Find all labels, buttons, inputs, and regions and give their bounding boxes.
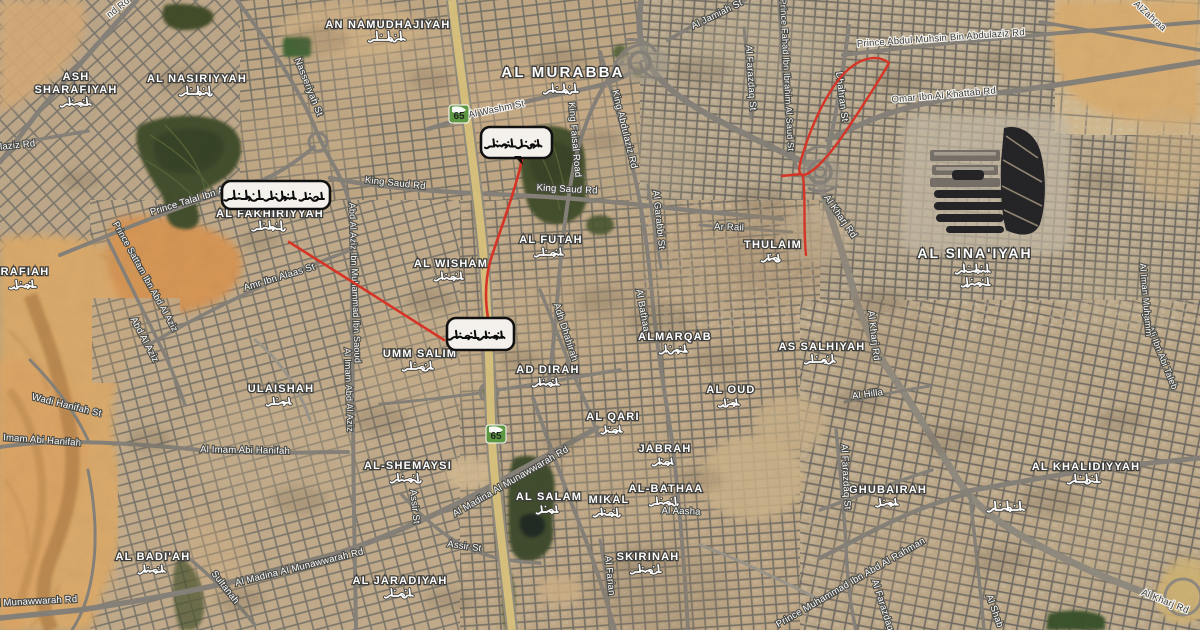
svg-text:AL OUD: AL OUD — [706, 384, 755, 396]
svg-text:AL-BATHAA: AL-BATHAA — [629, 483, 704, 495]
svg-text:JABRAH: JABRAH — [638, 443, 691, 455]
svg-text:AN NAMUDHAJIYAH: AN NAMUDHAJIYAH — [325, 19, 450, 31]
svg-text:GHUBAIRAH: GHUBAIRAH — [849, 484, 927, 496]
svg-text:ULAISHAH: ULAISHAH — [248, 383, 314, 395]
svg-text:AL BADI'AH: AL BADI'AH — [116, 551, 191, 563]
svg-text:AL-SHEMAYSI: AL-SHEMAYSI — [364, 460, 452, 472]
svg-text:Al Aasha: Al Aasha — [661, 505, 701, 517]
svg-text:THULAIM: THULAIM — [744, 239, 802, 251]
svg-text:AL SALAM: AL SALAM — [516, 491, 582, 503]
svg-text:SHARAFIYAH: SHARAFIYAH — [34, 84, 117, 96]
svg-text:AL NASIRIYYAH: AL NASIRIYYAH — [147, 73, 247, 85]
svg-text:AL SINA'IYAH: AL SINA'IYAH — [917, 245, 1032, 261]
svg-text:AL KHALIDIYYAH: AL KHALIDIYYAH — [1032, 461, 1140, 473]
svg-text:SKIRINAH: SKIRINAH — [617, 551, 680, 563]
svg-text:UMM SALIM: UMM SALIM — [383, 348, 457, 360]
svg-text:AL QARI: AL QARI — [586, 411, 639, 423]
svg-text:Ar Rail: Ar Rail — [714, 221, 744, 233]
svg-text:AS SALHIYAH: AS SALHIYAH — [779, 341, 866, 353]
svg-text:65: 65 — [453, 111, 465, 122]
svg-text:AL MURABBA: AL MURABBA — [501, 64, 624, 81]
svg-text:AL JARADIYAH: AL JARADIYAH — [352, 575, 447, 587]
svg-text:AL WISHAM: AL WISHAM — [414, 258, 488, 270]
svg-text:RAFIAH: RAFIAH — [1, 266, 50, 278]
svg-text:65: 65 — [490, 431, 502, 442]
svg-text:AL FUTAH: AL FUTAH — [519, 234, 583, 246]
svg-text:Al Imam Abi Hanifah: Al Imam Abi Hanifah — [200, 444, 290, 457]
svg-text:AD DIRAH: AD DIRAH — [516, 364, 579, 376]
svg-text:ALMARQAB: ALMARQAB — [638, 331, 712, 343]
svg-text:ASH: ASH — [63, 71, 90, 83]
svg-text:MIKAL: MIKAL — [589, 494, 630, 506]
